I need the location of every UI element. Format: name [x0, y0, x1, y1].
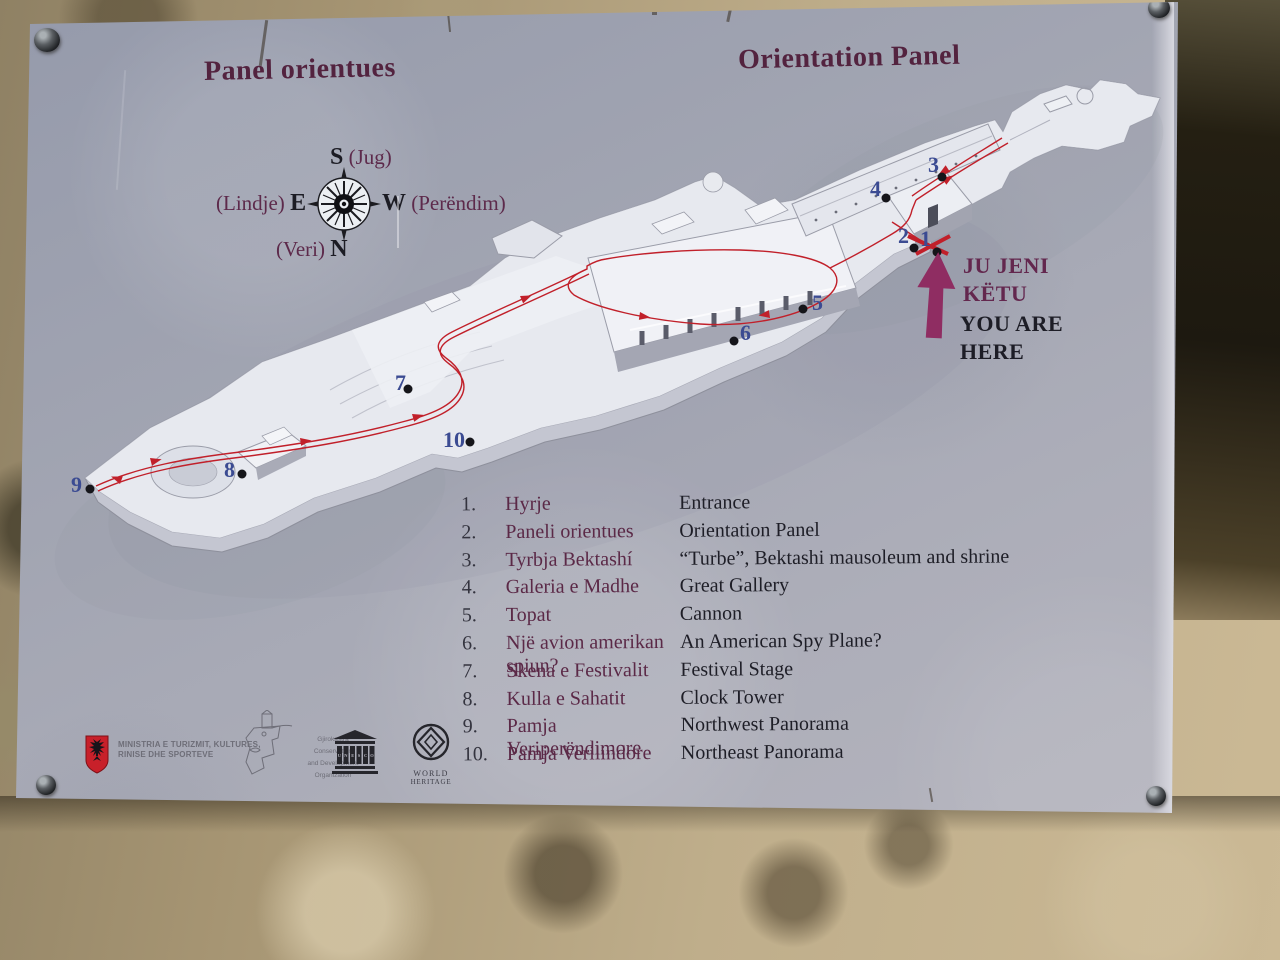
map-marker-label: 4: [870, 176, 881, 201]
mounting-screw: [34, 28, 60, 52]
gco-sketch-icon: [242, 710, 294, 782]
svg-text:E: E: [351, 753, 354, 758]
map-marker-label: 2: [898, 223, 909, 248]
map-marker-label: 7: [395, 370, 406, 395]
photo-of-orientation-panel: { "panel": { "title_sq": "Panel orientue…: [0, 0, 1280, 960]
map-marker-label: 3: [928, 152, 939, 177]
stone-wall-shadow-right: [1165, 0, 1280, 620]
ministry-logo: MINISTRIA E TURIZMIT, KULTURES, RINISE D…: [84, 734, 261, 774]
world-heritage-name: WORLD HERITAGE: [402, 769, 460, 787]
map-marker-label: 6: [740, 320, 751, 345]
albanian-eagle-icon: [84, 734, 110, 774]
panel-scratch: [397, 196, 399, 248]
you-are-here-arrow-icon: [905, 250, 965, 342]
map-marker-label: 10: [443, 427, 465, 452]
map-marker-label: 9: [71, 472, 82, 497]
svg-text:O: O: [370, 753, 374, 758]
mounting-screw: [36, 775, 56, 795]
you-are-here-english: YOU AREHERE: [960, 310, 1063, 366]
map-marker-label: 1: [920, 226, 931, 251]
map-marker-label: 8: [224, 457, 235, 482]
svg-text:C: C: [364, 753, 367, 758]
unesco-logo: UNE SCO: [332, 730, 378, 781]
sponsor-logos: MINISTRIA E TURIZMIT, KULTURES, RINISE D…: [84, 708, 464, 798]
world-heritage-logo: WORLD HERITAGE: [402, 722, 460, 787]
map-marker-label: 5: [812, 290, 823, 315]
ministry-name: MINISTRIA E TURIZMIT, KULTURES, RINISE D…: [118, 734, 261, 760]
map-legend: 1. Hyrje Entrance 2. Paneli orientues Or…: [461, 489, 1135, 772]
world-heritage-emblem-icon: [411, 722, 451, 762]
legend-row: 10. Pamja Verilindore Northeast Panorama: [463, 739, 1135, 771]
you-are-here-albanian: JU JENIKËTU: [963, 252, 1049, 308]
unesco-temple-icon: UNE SCO: [332, 730, 378, 776]
mounting-screw: [1146, 786, 1166, 806]
